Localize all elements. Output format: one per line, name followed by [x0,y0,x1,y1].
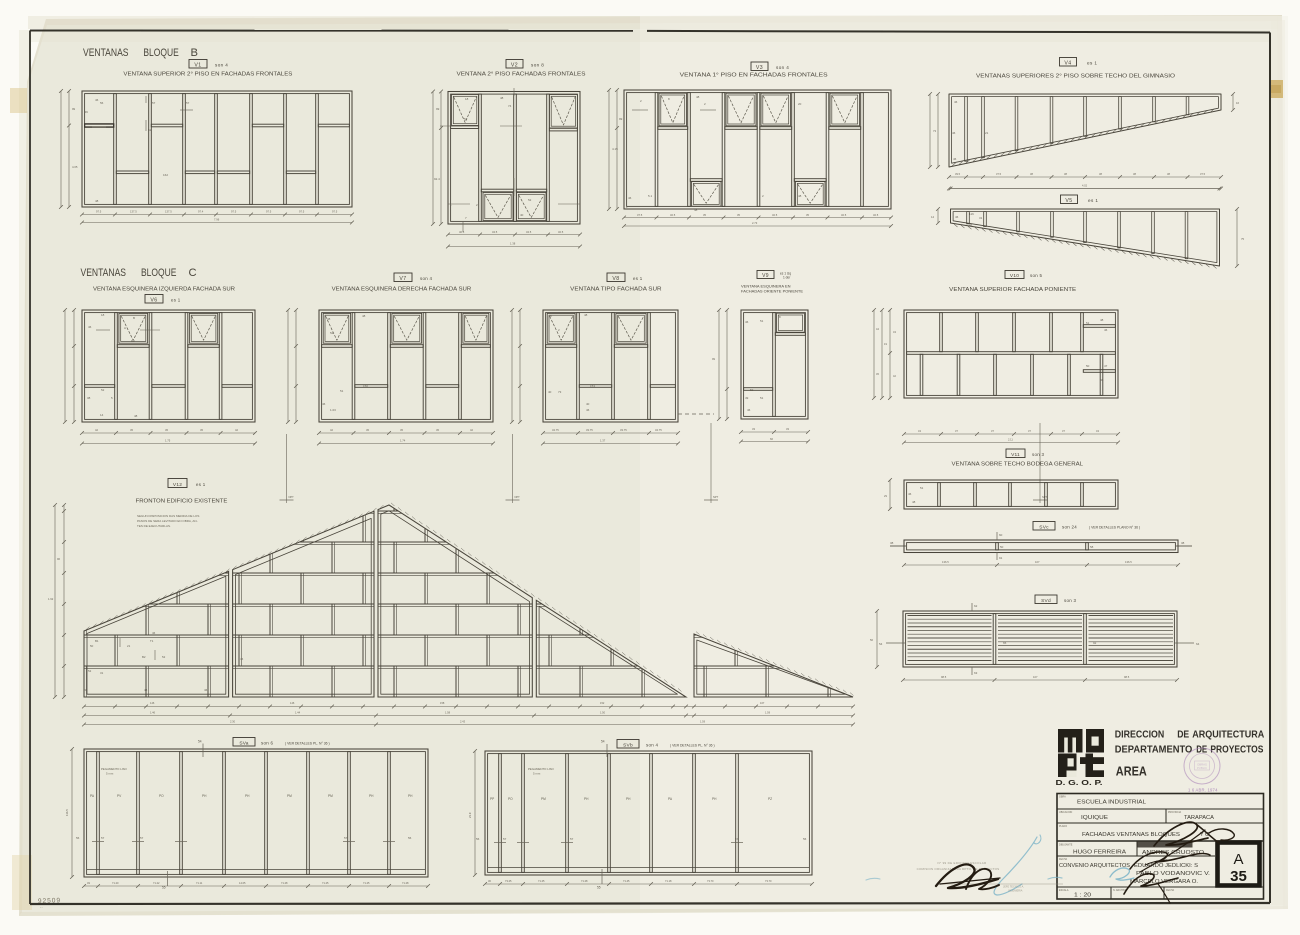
svg-text:99: 99 [72,107,76,111]
svg-text:97.4: 97.4 [198,210,204,214]
svg-text:152: 152 [600,701,605,705]
svg-text:57: 57 [152,101,156,105]
svg-text:42: 42 [95,428,98,432]
svg-text:es 1: es 1 [1087,61,1097,66]
svg-text:50: 50 [1086,364,1090,368]
svg-text:OBRA: OBRA [1059,796,1066,799]
svg-text:son 24: son 24 [1062,525,1077,530]
svg-text:73.70: 73.70 [707,879,714,883]
svg-text:48: 48 [696,95,700,99]
svg-text:107: 107 [1033,675,1038,679]
svg-text:48: 48 [134,414,138,418]
svg-text:VENTANA TIPO FACHADA SUR: VENTANA TIPO FACHADA SUR [570,287,662,293]
svg-text:PANOS DE SERA LEVITADO EN OBRA: PANOS DE SERA LEVITADO EN OBRA, AN- [137,519,198,523]
svg-text:·: · [1187,766,1188,770]
svg-text:37.5: 37.5 [1200,172,1206,176]
svg-text:SVa: SVa [239,740,248,746]
svg-text:32.5: 32.5 [772,213,778,217]
svg-text:PM: PM [541,797,546,801]
svg-text:46: 46 [955,215,959,219]
svg-text:SVd: SVd [1041,598,1051,604]
svg-text:35: 35 [737,213,740,217]
svg-text:BLOQUE: BLOQUE [143,47,178,59]
svg-text:PEGAMENTO LISO: PEGAMENTO LISO [101,767,128,771]
svg-text:46: 46 [628,196,632,200]
svg-text:VENTANAS: VENTANAS [81,267,127,279]
svg-text:75: 75 [1241,237,1245,241]
svg-text:34.75: 34.75 [552,428,559,432]
svg-text:46: 46 [747,408,751,412]
svg-text:54: 54 [601,740,605,744]
svg-text:52: 52 [464,117,468,121]
svg-text:167: 167 [760,701,765,705]
svg-text:52: 52 [528,198,532,202]
svg-text:son 3: son 3 [1032,452,1044,457]
svg-text:SEGUN DISPOSICION DAS MEDIDA D: SEGUN DISPOSICION DAS MEDIDA DE LOS [137,514,199,518]
svg-text:45: 45 [366,428,369,432]
svg-text:99: 99 [436,107,440,111]
svg-text:FECHA: FECHA [1166,889,1175,892]
svg-text:71.25: 71.25 [322,881,329,885]
svg-text:TARAPACA: TARAPACA [1184,815,1214,821]
svg-text:46: 46 [952,131,956,135]
svg-text:EDUARDO JEDLICKI: S: EDUARDO JEDLICKI: S [1134,863,1199,869]
svg-text:33.75: 33.75 [586,428,593,432]
svg-text:56: 56 [408,836,412,840]
svg-text:PROYECTOS: PROYECTOS [1210,745,1263,756]
svg-text:V12: V12 [173,482,182,488]
svg-text:DEPARTAMENTO: DEPARTAMENTO [1115,745,1193,756]
svg-text:14: 14 [100,413,104,417]
svg-text:137.5: 137.5 [130,210,137,214]
svg-text:21: 21 [127,644,131,648]
svg-text:VENTANA ESQUINERA DERECHA F: VENTANA ESQUINERA DERECHA FACHADA SUR [332,287,472,293]
svg-text:92: 92 [1093,641,1097,645]
svg-text:48: 48 [912,500,916,504]
svg-text:VENTANA 1° PISO EN FACHADA: VENTANA 1° PISO EN FACHADAS FRONTALES [680,73,828,79]
svg-text:·: · [1189,772,1190,776]
svg-text:52: 52 [162,655,166,659]
svg-text:49: 49 [745,396,749,400]
svg-text:DIRECCION: DIRECCION [1115,730,1165,741]
svg-text:PH: PH [408,794,413,798]
svg-text:51: 51 [760,319,764,323]
svg-text:97.5: 97.5 [266,210,272,214]
svg-text:58: 58 [1090,545,1094,549]
svg-text:1.46: 1.46 [150,711,156,715]
svg-text:73.70: 73.70 [765,879,772,883]
svg-text:162: 162 [163,173,168,177]
svg-text:46: 46 [152,631,156,635]
svg-text:71.11: 71.11 [196,881,203,885]
svg-text:57: 57 [570,837,574,841]
svg-text:52: 52 [148,128,152,132]
svg-text:37.5: 37.5 [637,213,643,217]
svg-text:·: · [1217,763,1218,767]
svg-text:62: 62 [974,604,978,608]
svg-text:38: 38 [327,317,331,321]
svg-text:A: A [124,326,126,330]
svg-text:56: 56 [100,101,104,105]
svg-text:( VER DETALLES PL. N° 36 ): ( VER DETALLES PL. N° 36 ) [285,742,330,746]
svg-text:73: 73 [933,129,937,133]
svg-text:16: 16 [1236,101,1240,105]
svg-text:31: 31 [100,671,104,675]
svg-text:SVb: SVb [623,742,633,748]
svg-text:1.75: 1.75 [165,439,171,443]
svg-text:·: · [1206,748,1207,752]
svg-text:31: 31 [979,216,983,220]
svg-text:JEFE TECNICO A.: JEFE TECNICO A. [1003,886,1024,889]
svg-text:38: 38 [1181,541,1185,545]
svg-text:PH: PH [245,794,250,798]
svg-text:49: 49 [85,110,89,114]
svg-text:BLOQUE: BLOQUE [141,267,176,279]
svg-text:40: 40 [586,402,590,406]
svg-text:·: · [1187,760,1188,764]
svg-text:33: 33 [752,427,755,431]
svg-text:VENTANA SUPERIOR FACHADA PO: VENTANA SUPERIOR FACHADA PONIENTE [949,287,1077,293]
svg-text:VENTANA ESQUINERA IZQUIERDA: VENTANA ESQUINERA IZQUIERDA FACHADA SUR [93,287,235,293]
svg-text:63: 63 [974,671,978,675]
svg-text:46: 46 [322,402,326,406]
svg-text:HUGO FERREIRA: HUGO FERREIRA [1073,850,1126,856]
svg-text:·: · [1200,778,1201,782]
svg-text:46: 46 [745,320,749,324]
svg-text:51: 51 [340,389,344,393]
svg-text:1.38: 1.38 [510,242,516,246]
svg-text:45: 45 [436,428,439,432]
svg-text:V2: V2 [511,62,518,68]
svg-text:18: 18 [101,313,105,317]
svg-text:51: 51 [920,486,924,490]
svg-text:46: 46 [1100,378,1104,382]
svg-text:71.45: 71.45 [623,879,630,883]
svg-text:46: 46 [95,98,99,102]
svg-text:INGENIERIA: INGENIERIA [1008,890,1023,893]
svg-text:V9: V9 [762,273,769,279]
svg-text:52: 52 [101,388,105,392]
svg-text:UBICACION: UBICACION [1059,811,1073,814]
svg-text:116: 116 [969,212,974,216]
svg-text:PH: PH [584,797,589,801]
svg-text:·: · [1216,757,1217,761]
svg-text:V6: V6 [150,297,157,303]
svg-text:99: 99 [619,117,623,121]
svg-text:1.44: 1.44 [295,711,301,715]
svg-text:B: B [133,316,135,320]
svg-text:1.59: 1.59 [765,711,771,715]
svg-text:FECHA: FECHA [1059,858,1068,861]
svg-text:PZ: PZ [768,797,772,801]
svg-text:son 4: son 4 [420,276,432,281]
svg-text:45: 45 [200,428,203,432]
svg-text:40.5: 40.5 [459,230,465,234]
svg-text:son 8: son 8 [531,63,544,68]
svg-text:PH: PH [626,797,631,801]
svg-text:42: 42 [235,428,238,432]
svg-text:PM: PM [328,794,333,798]
svg-text:71.22: 71.22 [153,881,160,885]
svg-text:es 1: es 1 [171,298,181,303]
svg-text:··: ·· [40,905,43,910]
svg-text:46: 46 [88,325,92,329]
svg-text:46: 46 [204,688,208,692]
svg-text:146: 146 [290,701,295,705]
svg-text:33.75: 33.75 [620,428,627,432]
svg-text:35: 35 [1230,868,1247,885]
svg-text:14: 14 [931,215,935,219]
svg-text:PEGAMENTO LISO: PEGAMENTO LISO [528,767,555,771]
svg-text:1.03: 1.03 [330,408,336,412]
svg-text:32.5: 32.5 [558,230,564,234]
svg-text:66: 66 [770,437,773,441]
svg-text:46: 46 [586,408,590,412]
svg-text:45: 45 [130,428,133,432]
svg-text:96: 96 [57,557,60,561]
svg-text:TES DE EJECUTARLAS.: TES DE EJECUTARLAS. [137,524,171,528]
svg-text:35: 35 [806,213,809,217]
svg-text:14.05: 14.05 [239,881,246,885]
svg-text:48: 48 [500,96,504,100]
svg-text:34.5: 34.5 [526,230,532,234]
svg-text:38: 38 [890,541,894,545]
svg-text:52: 52 [750,388,754,392]
svg-text:B1: B1 [95,639,99,643]
svg-text:1.37: 1.37 [600,439,606,443]
svg-text:( VER DETALLES PLANO N° 36 ): ( VER DETALLES PLANO N° 36 ) [1089,526,1140,530]
svg-text:51: 51 [760,396,764,400]
svg-text:T1: T1 [150,639,154,643]
svg-text:ARQUITECTURA: ARQUITECTURA [1192,730,1264,741]
svg-text:38: 38 [87,396,91,400]
svg-text:46: 46 [953,157,957,161]
svg-text:51: 51 [1086,321,1090,325]
svg-text:46: 46 [1104,328,1108,332]
svg-text:son 6: son 6 [261,741,273,746]
svg-text:PO: PO [159,794,164,798]
svg-text:1.74: 1.74 [400,439,406,443]
svg-text:·: · [1212,752,1213,756]
svg-text:V5: V5 [1065,198,1072,204]
svg-text:52: 52 [88,669,92,673]
svg-text:98.5: 98.5 [941,675,947,679]
svg-text:48: 48 [362,314,366,318]
svg-text:92.4: 92.4 [434,177,440,181]
svg-text:VENTANA SUPERIOR 2° PISO E: VENTANA SUPERIOR 2° PISO EN FACHADAS FRO… [123,72,292,78]
svg-text:98.5: 98.5 [1124,675,1130,679]
svg-text:146: 146 [150,701,155,705]
svg-text:20: 20 [798,102,802,106]
svg-text:56: 56 [870,638,873,642]
svg-text:4.02: 4.02 [1082,184,1088,188]
svg-text:71.28: 71.28 [581,879,588,883]
svg-text:1 der: 1 der [783,276,791,280]
svg-text:DE: DE [1177,730,1189,741]
svg-text:57: 57 [140,836,144,840]
svg-text:46: 46 [954,100,958,104]
svg-text:2.43: 2.43 [460,720,466,724]
svg-text:·: · [1194,776,1195,780]
svg-text:PROVINCIA: PROVINCIA [1168,811,1182,814]
svg-text:54: 54 [879,642,883,646]
svg-text:50: 50 [90,644,94,648]
svg-text:D. G. O. P.: D. G. O. P. [1056,778,1103,787]
svg-text:47: 47 [1104,364,1108,368]
svg-text:136.5: 136.5 [942,560,949,564]
svg-text:40: 40 [520,213,524,217]
svg-text:64: 64 [1196,642,1200,646]
svg-text:60: 60 [999,533,1003,537]
svg-text:71.25: 71.25 [363,881,370,885]
svg-text:VENTANAS: VENTANAS [83,47,129,59]
svg-text:NPT: NPT [289,495,295,499]
svg-text:74: 74 [508,104,512,108]
svg-text:C: C [189,267,197,279]
svg-text:2.73: 2.73 [752,221,758,225]
svg-text:PUBLIC: PUBLIC [1197,766,1207,770]
svg-text:71.28: 71.28 [281,881,288,885]
svg-text:21: 21 [985,131,989,135]
svg-text:ESCALA: ESCALA [1059,889,1069,892]
svg-text:137.5: 137.5 [165,210,172,214]
svg-text:AREA: AREA [1116,765,1147,779]
svg-text:( VER DETALLES PL. N° 36 ): ( VER DETALLES PL. N° 36 ) [670,744,715,748]
svg-text:57: 57 [503,837,507,841]
svg-text:B: B [191,47,198,59]
svg-text:·: · [1216,769,1217,773]
svg-text:NPT: NPT [713,495,719,499]
svg-text:son 5: son 5 [1030,273,1042,278]
svg-text:PO: PO [508,797,513,801]
svg-text:1 6 ABR. 1974: 1 6 ABR. 1974 [1188,788,1218,793]
svg-text:57: 57 [186,101,190,105]
svg-text:B2: B2 [142,655,146,659]
svg-text:45: 45 [165,428,168,432]
svg-text:PH: PH [202,794,207,798]
svg-text:FACHADAS ORIENTE PONIENTE: FACHADAS ORIENTE PONIENTE [741,289,803,294]
svg-text:PH: PH [712,797,717,801]
svg-text:71.25: 71.25 [538,879,545,883]
svg-text:V8: V8 [612,276,619,282]
svg-text:7.96: 7.96 [214,218,220,222]
svg-text:2.30: 2.30 [230,720,236,724]
svg-text:son 4: son 4 [776,65,789,70]
svg-text:97.5: 97.5 [332,210,338,214]
svg-text:ESCUELA INDUSTRIAL: ESCUELA INDUSTRIAL [1077,800,1147,806]
svg-text:18: 18 [465,97,469,101]
svg-text:34.5: 34.5 [492,230,498,234]
svg-text:48: 48 [1100,318,1104,322]
svg-text:97.5: 97.5 [231,210,237,214]
svg-text:PP: PP [490,797,494,801]
svg-text:A: A [1233,851,1243,868]
svg-text:1.50: 1.50 [600,711,606,715]
svg-text:·: · [1194,750,1195,754]
svg-text:52: 52 [330,331,334,335]
svg-text:5 mm: 5 mm [533,772,541,776]
svg-text:73: 73 [558,390,562,394]
svg-text:32.5: 32.5 [873,213,879,217]
svg-text:33: 33 [786,427,789,431]
svg-text:·: · [1212,774,1213,778]
svg-text:99: 99 [712,357,715,361]
svg-text:42: 42 [330,428,333,432]
svg-text:5 mm: 5 mm [106,772,114,776]
svg-text:1.59: 1.59 [700,720,706,724]
svg-text:VENTANA 2° PISO FACHADAS F: VENTANA 2° PISO FACHADAS FRONTALES [457,72,586,78]
svg-text:D2: D2 [131,339,135,343]
svg-text:es 1: es 1 [633,276,643,281]
svg-text:150: 150 [363,384,368,388]
svg-text:46: 46 [240,657,244,661]
svg-text:97.5: 97.5 [96,210,102,214]
svg-text:40: 40 [548,390,552,394]
svg-text:107: 107 [1035,560,1040,564]
svg-text:71.28: 71.28 [402,881,409,885]
svg-text:PH: PH [369,794,374,798]
svg-text:·: · [1206,778,1207,782]
svg-text:son 4: son 4 [646,743,658,748]
svg-text:1.92: 1.92 [48,597,54,601]
svg-text:5.1: 5.1 [648,194,653,198]
svg-text:V7: V7 [399,276,406,282]
svg-text:45: 45 [400,428,403,432]
svg-text:4.15: 4.15 [612,147,618,151]
svg-text:·: · [1189,754,1190,758]
svg-text:V11: V11 [1011,452,1020,458]
svg-text:PLANO: PLANO [1059,825,1067,828]
svg-text:32.5: 32.5 [670,213,676,217]
svg-text:PM: PM [287,794,292,798]
svg-text:92509: 92509 [38,897,61,905]
svg-text:2.11: 2.11 [1008,438,1013,442]
svg-text:57: 57 [101,836,105,840]
svg-text:34.75: 34.75 [655,428,662,432]
svg-text:158: 158 [440,701,445,705]
svg-text:V4: V4 [1064,60,1071,66]
svg-text:21.9: 21.9 [468,812,472,818]
svg-text:39.5: 39.5 [955,172,961,176]
svg-text:IQUIQUE: IQUIQUE [1081,815,1108,821]
svg-text:48: 48 [95,199,99,203]
svg-text:·: · [1200,748,1201,752]
svg-text:42: 42 [470,428,473,432]
svg-text:153: 153 [590,384,595,388]
svg-text:1 : 20: 1 : 20 [1074,893,1091,899]
svg-text:57: 57 [344,836,348,840]
svg-text:71.18: 71.18 [665,879,672,883]
svg-text:54: 54 [198,740,202,744]
svg-text:71.20: 71.20 [112,881,119,885]
svg-text:46: 46 [969,223,973,227]
svg-text:FRONTON EDIFICIO EXISTENTE: FRONTON EDIFICIO EXISTENTE [136,499,228,505]
svg-text:65: 65 [1003,641,1007,645]
svg-text:56: 56 [803,837,807,841]
svg-text:56: 56 [76,836,80,840]
svg-text:VENTANA SOBRE TECHO BODEGA: VENTANA SOBRE TECHO BODEGA GENERAL [952,462,1084,468]
svg-text:4.05: 4.05 [72,165,78,169]
svg-text:56: 56 [476,837,480,841]
svg-text:48: 48 [144,688,148,692]
svg-text:97.5: 97.5 [299,210,305,214]
svg-text:32.5: 32.5 [841,213,847,217]
svg-text:48: 48 [694,208,698,212]
svg-text:VENTANAS SUPERIORES 2° PISO: VENTANAS SUPERIORES 2° PISO SOBRE TECHO … [976,74,1176,80]
svg-text:136.5: 136.5 [1125,560,1132,564]
svg-text:116.5: 116.5 [65,809,69,816]
svg-text:NPT: NPT [515,495,521,499]
